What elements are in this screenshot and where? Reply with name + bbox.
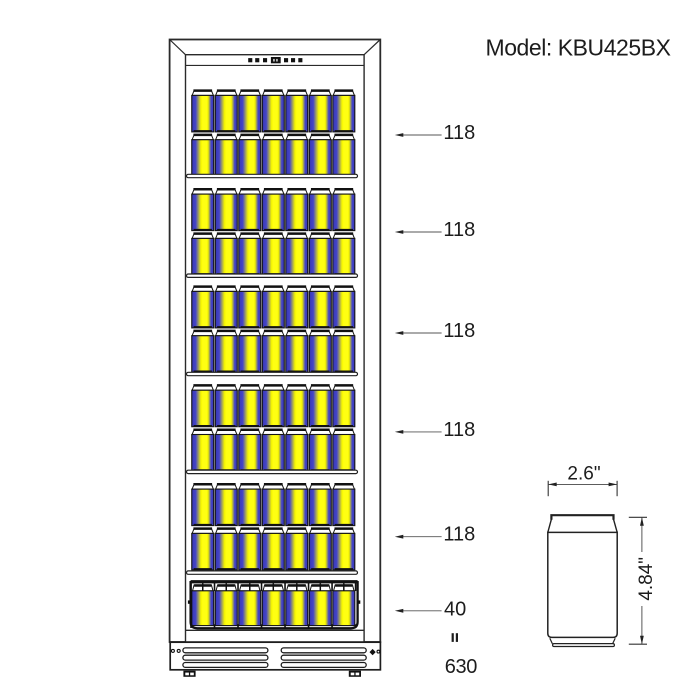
svg-text:630: 630 <box>445 656 477 678</box>
svg-text:118: 118 <box>443 122 475 144</box>
svg-text:118: 118 <box>443 320 475 342</box>
svg-text:118: 118 <box>443 524 475 546</box>
svg-text:Model: KBU425BX: Model: KBU425BX <box>486 35 671 61</box>
svg-text:40: 40 <box>444 598 466 620</box>
svg-text:2.6": 2.6" <box>567 464 600 485</box>
svg-text:118: 118 <box>443 419 475 441</box>
svg-text:118: 118 <box>443 219 475 241</box>
svg-text:4.84": 4.84" <box>636 557 657 601</box>
